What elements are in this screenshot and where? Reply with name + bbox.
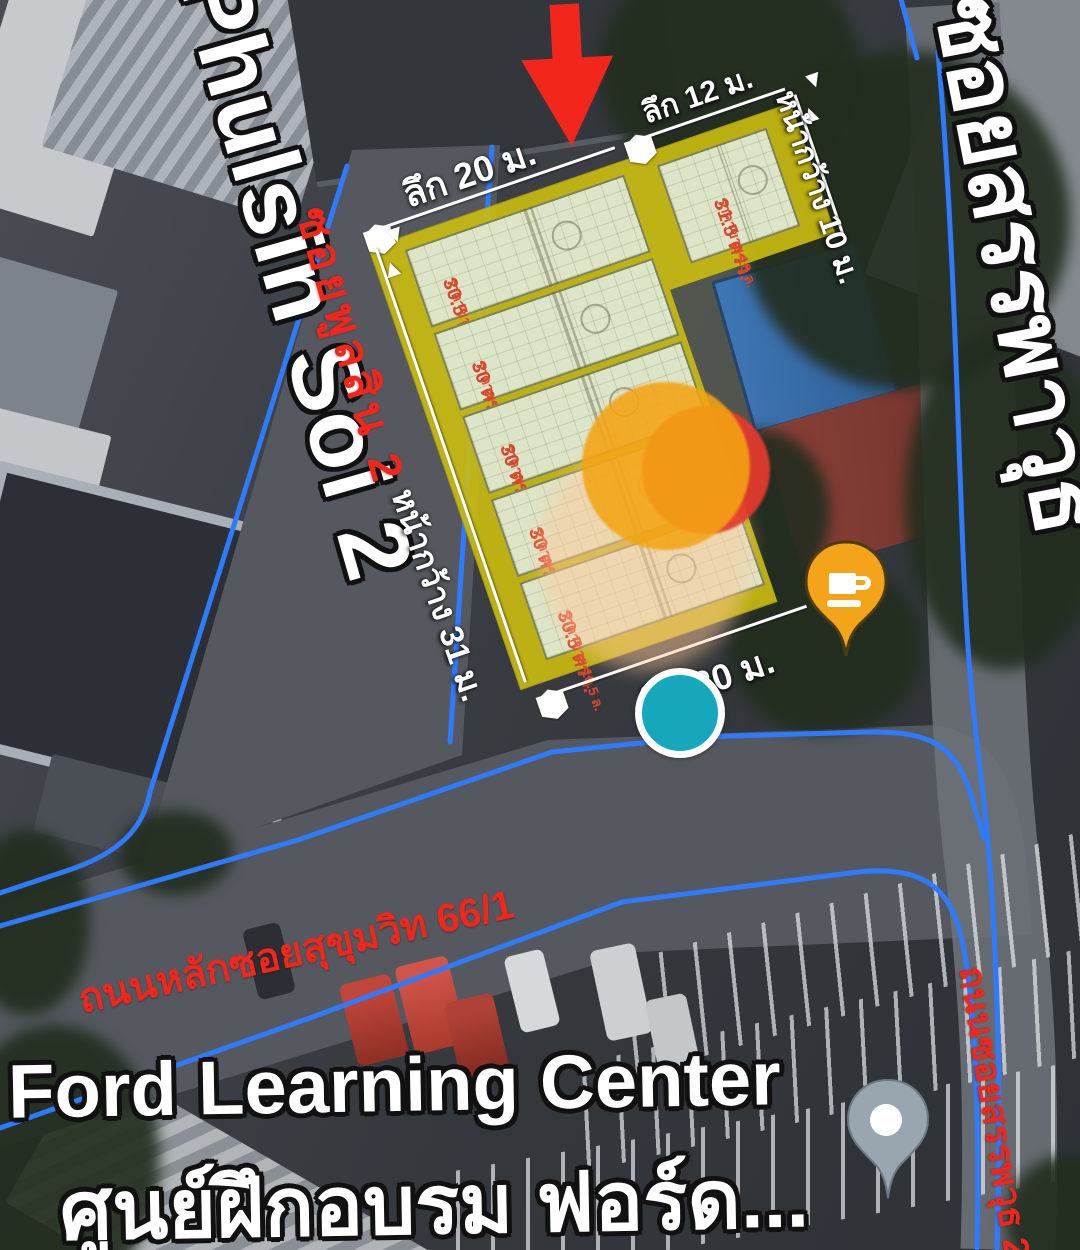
place-label-ford-learning-center: Ford Learning Center: [7, 1035, 781, 1135]
map-canvas[interactable]: Phulsin Soi 2 ซอยสรรพาวุธ Ford Learning …: [0, 0, 1080, 1250]
place-label-ford-thai: ศูนย์ฝึกอบรม ฟอร์ด...: [59, 1133, 810, 1250]
pin-shape: [848, 1080, 928, 1198]
location-highlight-orange: [582, 382, 750, 550]
pin-shape: [806, 542, 886, 656]
transit-stop-marker[interactable]: [635, 668, 725, 758]
pin-dot: [870, 1104, 902, 1136]
